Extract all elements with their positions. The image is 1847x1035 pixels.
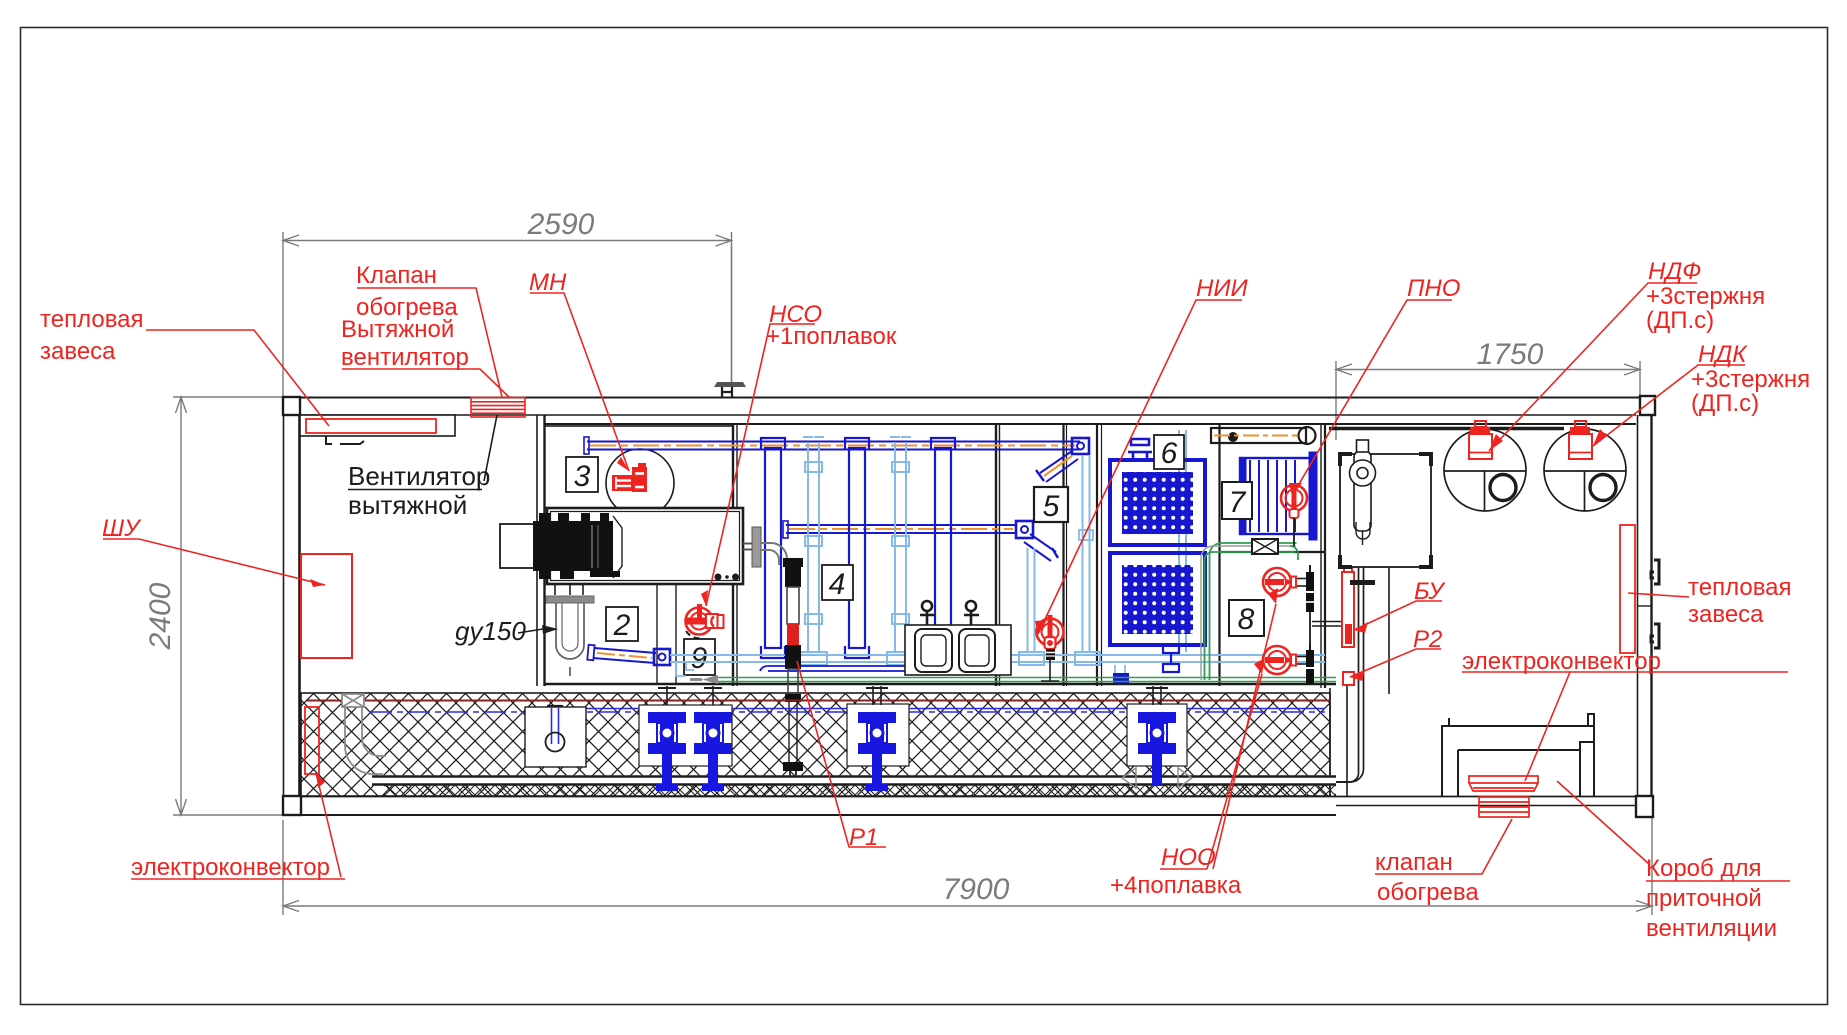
svg-text:+3стержня: +3стержня — [1691, 366, 1810, 393]
svg-text:вентиляции: вентиляции — [1646, 915, 1777, 942]
svg-text:обогрева: обогрева — [1377, 879, 1479, 906]
svg-text:Р1: Р1 — [849, 824, 878, 851]
svg-text:НИИ: НИИ — [1196, 275, 1249, 302]
svg-text:НДФ: НДФ — [1648, 258, 1701, 285]
svg-text:2: 2 — [613, 609, 631, 642]
svg-text:клапан: клапан — [1375, 849, 1453, 876]
svg-text:Короб для: Короб для — [1646, 855, 1761, 882]
svg-text:4: 4 — [829, 568, 846, 601]
svg-text:Р2: Р2 — [1413, 626, 1442, 653]
svg-text:МН: МН — [529, 269, 567, 296]
svg-text:тепловая: тепловая — [1688, 574, 1792, 601]
svg-text:8: 8 — [1238, 603, 1255, 636]
svg-text:БУ: БУ — [1414, 578, 1446, 605]
svg-text:электроконвектор: электроконвектор — [131, 854, 330, 881]
svg-text:6: 6 — [1161, 437, 1178, 470]
svg-text:2590: 2590 — [527, 208, 595, 241]
svg-text:gy150: gy150 — [455, 616, 526, 646]
svg-text:1750: 1750 — [1477, 338, 1544, 371]
svg-text:электроконвектор: электроконвектор — [1462, 648, 1661, 675]
svg-text:НДК: НДК — [1698, 341, 1748, 368]
svg-text:+4поплавка: +4поплавка — [1110, 872, 1242, 899]
svg-text:+3стержня: +3стержня — [1646, 283, 1765, 310]
svg-text:+1поплавок: +1поплавок — [766, 323, 897, 350]
svg-text:Вентилятор: Вентилятор — [348, 461, 490, 491]
svg-text:приточной: приточной — [1646, 885, 1762, 912]
svg-text:3: 3 — [574, 460, 591, 493]
svg-text:7900: 7900 — [943, 873, 1010, 906]
svg-text:(ДП.с): (ДП.с) — [1691, 390, 1759, 417]
svg-text:завеса: завеса — [1688, 601, 1764, 628]
svg-text:2400: 2400 — [144, 582, 177, 650]
svg-text:5: 5 — [1043, 490, 1060, 523]
svg-text:ШУ: ШУ — [102, 515, 142, 542]
svg-text:Вытяжной: Вытяжной — [341, 316, 454, 343]
svg-text:вентилятор: вентилятор — [341, 344, 469, 371]
svg-text:Клапан: Клапан — [356, 262, 437, 289]
svg-text:НОО: НОО — [1161, 844, 1216, 871]
svg-text:ПНО: ПНО — [1407, 275, 1460, 302]
svg-text:вытяжной: вытяжной — [348, 490, 467, 520]
svg-text:завеса: завеса — [40, 338, 116, 365]
svg-text:(ДП.с): (ДП.с) — [1646, 307, 1714, 334]
svg-text:7: 7 — [1229, 486, 1247, 519]
svg-text:тепловая: тепловая — [40, 306, 144, 333]
